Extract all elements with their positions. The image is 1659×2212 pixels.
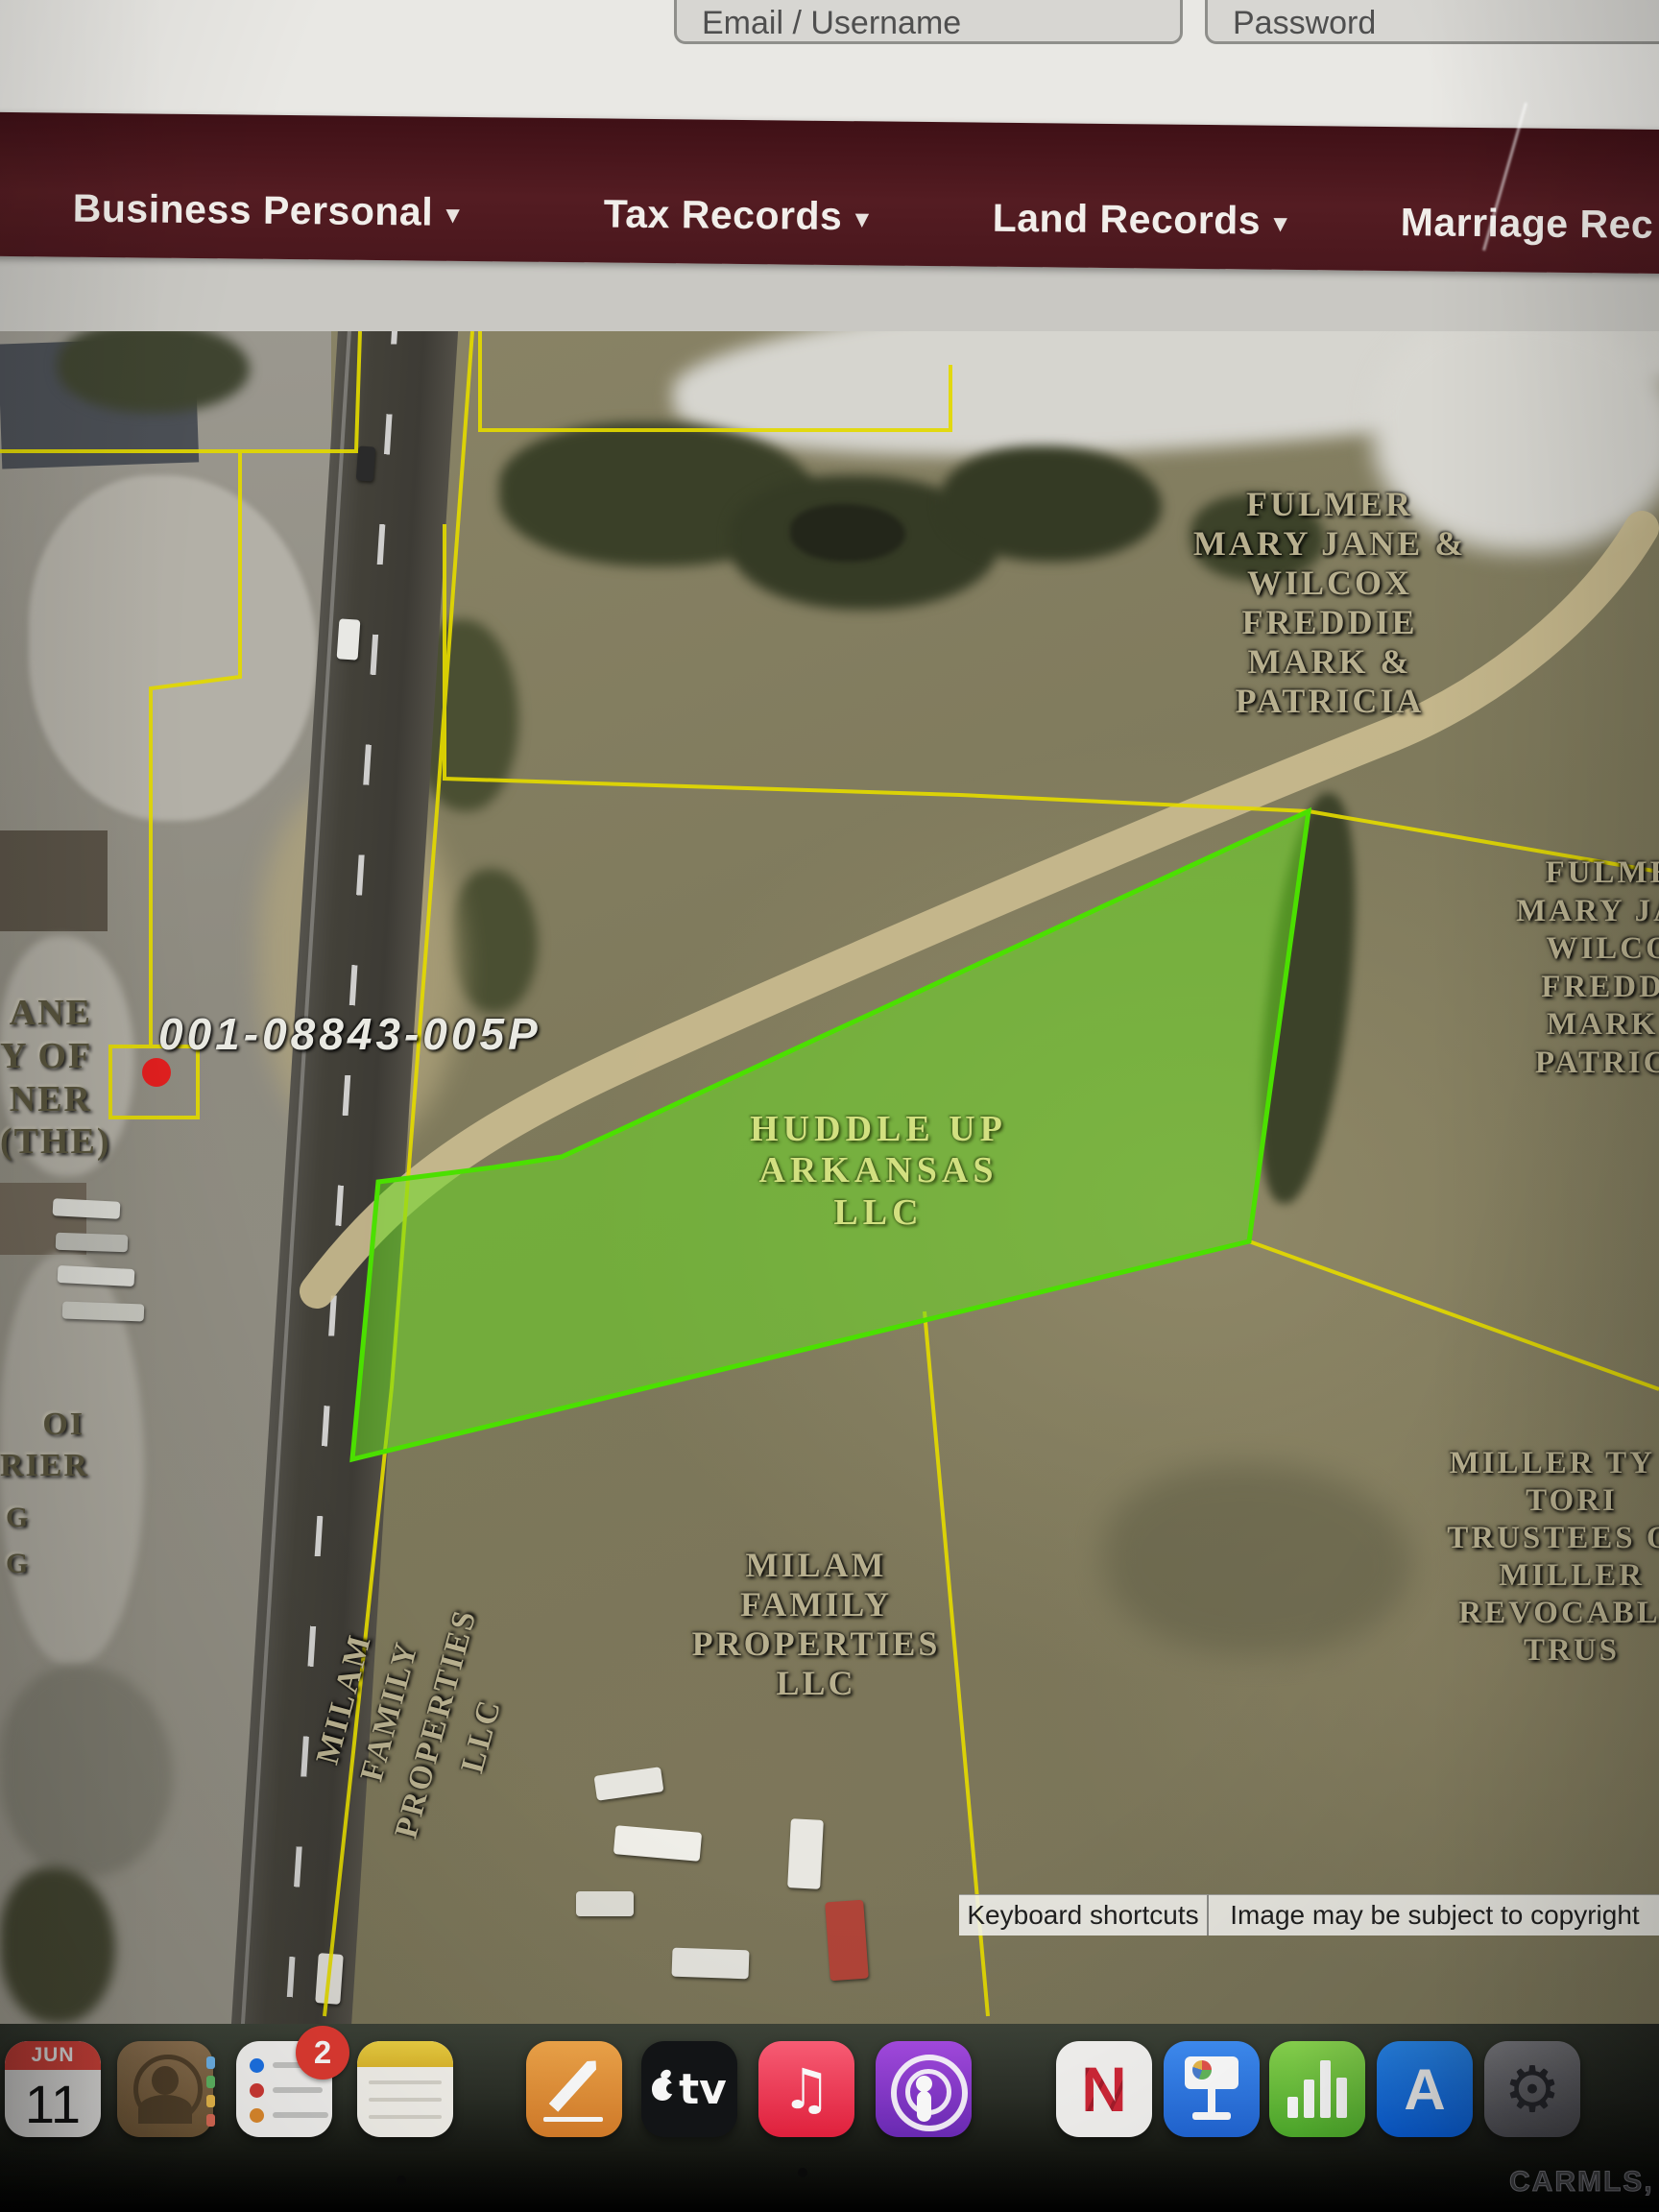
nav-label: Tax Records [604, 145, 844, 239]
copyright-notice: Image may be subject to copyright [1209, 1894, 1659, 1935]
macos-dock: JUN 11 2 tv [0, 2024, 1659, 2212]
dock-icon-system-settings[interactable]: ⚙ [1484, 2041, 1580, 2137]
keyboard-shortcuts-button[interactable]: Keyboard shortcuts [959, 1894, 1209, 1935]
pen-icon [549, 2056, 601, 2112]
main-navbar: Business Personal ▾ Tax Records ▾ Land R… [0, 112, 1659, 275]
running-indicator-dot [397, 2176, 406, 2185]
dock-icon-calendar[interactable]: JUN 11 [5, 2041, 101, 2137]
nav-label: Business Personal [73, 139, 434, 234]
calendar-month: JUN [5, 2041, 101, 2070]
parcel-label-fulmer-edge: FULMER MARY JANE WILCOX FREDDIE MARK & P… [1479, 854, 1659, 1083]
dock-icon-pages[interactable] [526, 2041, 622, 2137]
apple-logo-icon [652, 2078, 673, 2101]
dock-icon-podcasts[interactable] [876, 2041, 972, 2137]
parcel-number-label: 001-08843-005P [158, 1008, 541, 1060]
dock-icon-news[interactable]: N [1056, 2041, 1152, 2137]
contacts-silhouette [133, 2055, 203, 2124]
news-logo: N [1081, 2053, 1127, 2126]
nav-label: Marriage Rec [1400, 154, 1653, 248]
email-username-input[interactable] [674, 0, 1183, 44]
notes-header [357, 2041, 453, 2067]
dock-icon-app-store[interactable]: A [1377, 2041, 1473, 2137]
password-input[interactable] [1205, 0, 1659, 44]
nav-item-tax-records[interactable]: Tax Records ▾ [603, 118, 870, 265]
parcel-label-left-edge-g: G G [6, 1495, 44, 1587]
parcel-marker-dot [142, 1058, 171, 1087]
running-indicator-dot [798, 2168, 807, 2177]
podcast-waves-icon [891, 2055, 968, 2131]
nav-item-land-records[interactable]: Land Records ▾ [992, 123, 1288, 270]
dock-icon-apple-tv[interactable]: tv [641, 2041, 737, 2137]
dock-icon-contacts[interactable] [117, 2041, 213, 2137]
app-store-logo: A [1404, 2056, 1445, 2123]
parcel-label-miller-edge: MILLER TY & TORI TRUSTEES OF MILLER REVO… [1428, 1445, 1659, 1670]
music-note-icon: ♫ [781, 2056, 831, 2122]
dock-icon-reminders[interactable]: 2 [236, 2041, 332, 2137]
dock-icon-notes[interactable] [357, 2041, 453, 2137]
parcel-label-left-edge: ANE Y OF NER (THE) [0, 992, 92, 1164]
notification-badge: 2 [296, 2026, 349, 2080]
nav-label: Land Records [992, 149, 1261, 243]
keynote-podium-icon [1185, 2056, 1238, 2089]
parcel-label-fulmer: FULMER MARY JANE & WILCOX FREDDIE MARK &… [1186, 485, 1474, 721]
chevron-down-icon: ▾ [446, 149, 460, 228]
dock-icon-music[interactable]: ♫ [758, 2041, 854, 2137]
bar-chart-icon [1287, 2097, 1298, 2118]
parcel-label-huddle-up: HUDDLE UP ARKANSAS LLC [734, 1109, 1022, 1234]
watermark-text: CARMLS, INC [1509, 2166, 1659, 2199]
nav-item-business-personal[interactable]: Business Personal ▾ [72, 113, 461, 261]
map-attribution-bar: Keyboard shortcuts Image may be subject … [959, 1894, 1659, 1935]
aerial-parcel-map[interactable]: FULMER MARY JANE & WILCOX FREDDIE MARK &… [0, 331, 1659, 2024]
chevron-down-icon: ▾ [855, 154, 869, 233]
parcel-label-milam: MILAM FAMILY PROPERTIES LLC [672, 1546, 960, 1703]
parcel-label-left-edge-lower: OI RIER [0, 1405, 84, 1486]
nav-item-marriage-records[interactable]: Marriage Rec [1400, 127, 1654, 274]
photographed-screen: Business Personal ▾ Tax Records ▾ Land R… [0, 0, 1659, 2212]
chevron-down-icon: ▾ [1274, 157, 1287, 237]
dock-icon-numbers[interactable] [1269, 2041, 1365, 2137]
calendar-day: 11 [5, 2070, 101, 2137]
tv-label: tv [679, 2065, 727, 2114]
gear-icon: ⚙ [1503, 2053, 1560, 2127]
dock-icon-keynote[interactable] [1164, 2041, 1260, 2137]
